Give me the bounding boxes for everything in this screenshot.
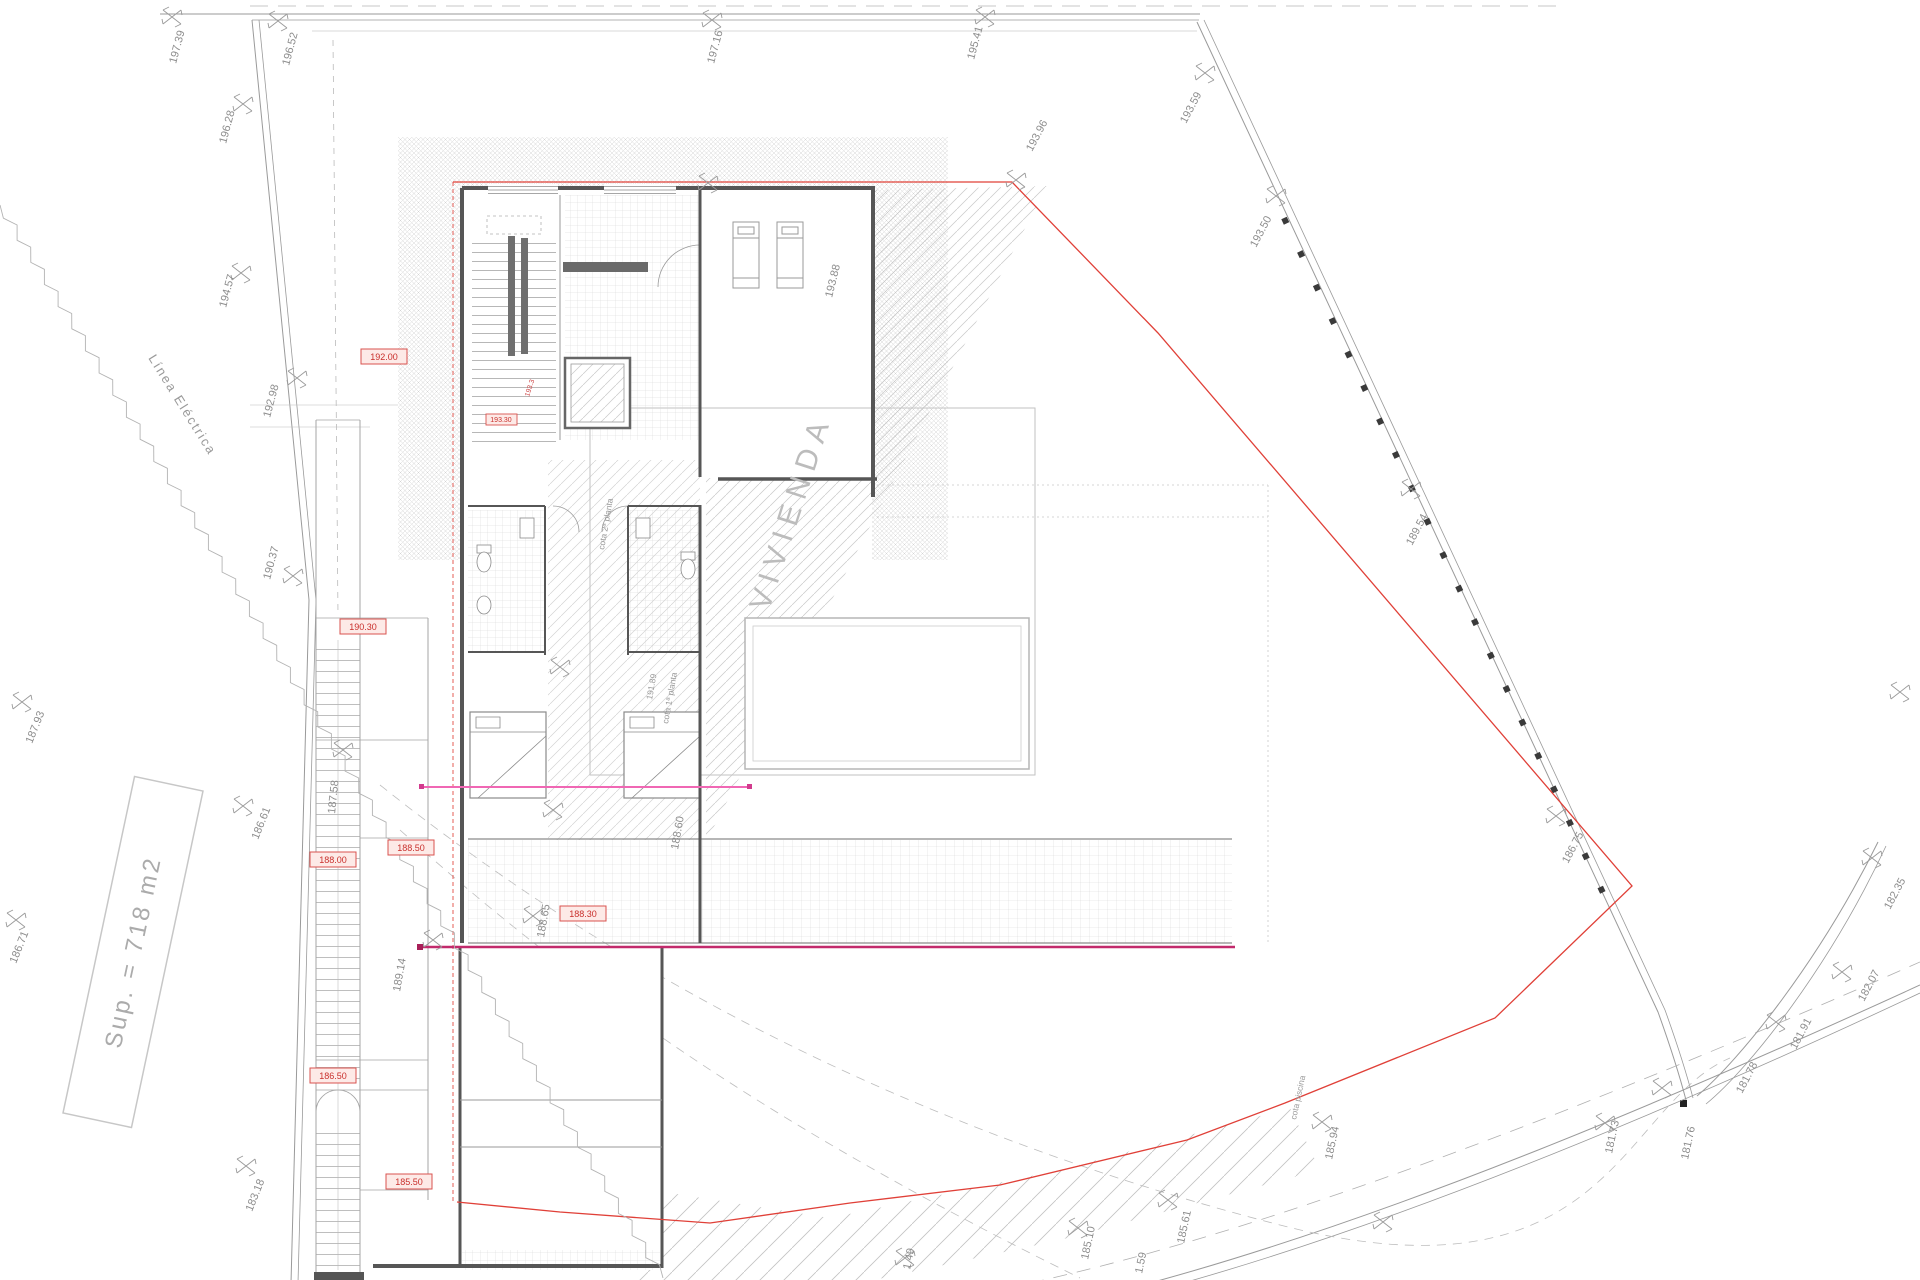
terrace-deck: [468, 839, 1232, 943]
cota-box: 188.50: [388, 840, 434, 855]
elevation-label: 186.71: [8, 929, 32, 965]
sink-icon: [520, 518, 534, 538]
cota-value: 188.30: [569, 909, 597, 919]
elevation-label: 181.76: [1679, 1125, 1698, 1160]
elevation-label: 185.61: [1175, 1209, 1194, 1244]
bathroom-right: [628, 510, 700, 652]
elevation-label: 186.61: [250, 805, 274, 841]
site-plan-drawing: 197.39 196.52 197.16 195.41 193.59 193.5…: [0, 0, 1920, 1280]
road-centerline: [1030, 962, 1920, 1280]
elevation-label: 181.73: [1603, 1119, 1622, 1154]
elevation-label: 183.18: [244, 1177, 268, 1213]
elevation-label: 181.78: [1734, 1060, 1760, 1095]
note-label: cota piscina: [1288, 1074, 1307, 1120]
elevation-label: 193.50: [1248, 214, 1274, 249]
elevation-label: 197.39: [167, 29, 187, 65]
elevation-label: 196.52: [280, 31, 300, 67]
elevation-label: 186.75: [1560, 830, 1586, 865]
bed-left: [470, 712, 546, 798]
elevation-label: 189.14: [391, 957, 409, 992]
elevation-label: 193.59: [1178, 90, 1204, 125]
cota-box: 192.00: [361, 349, 407, 364]
sink-icon: [636, 518, 650, 538]
toilet-icon: [477, 552, 491, 572]
driveway-hatch: [630, 1108, 1320, 1280]
elevation-label: 181.91: [1788, 1016, 1814, 1051]
elevation-label: 185.94: [1323, 1125, 1342, 1160]
cota-value: 188.00: [319, 855, 347, 865]
toilet-icon: [681, 559, 695, 579]
elevation-label: 189.54: [1404, 512, 1430, 547]
cota-value: 186.50: [319, 1071, 347, 1081]
cota-value: 190.30: [349, 622, 377, 632]
bathroom-left: [468, 510, 545, 652]
cota-box: 193.30: [486, 414, 517, 425]
shower-shaft: [565, 358, 630, 428]
parcel-area-box: Sup. = 718 m2: [63, 776, 203, 1127]
elevation-label: 182.07: [1856, 968, 1882, 1003]
cota-value: 192.00: [370, 352, 398, 362]
parcel-area-label: Sup. = 718 m2: [100, 854, 167, 1051]
power-line-label: Línea Eléctrica: [145, 352, 219, 458]
elevation-label: 1.59: [1133, 1251, 1149, 1274]
cota-value: 193.30: [490, 417, 512, 424]
lower-wing: [373, 947, 662, 1270]
cota-box: 188.00: [310, 852, 356, 867]
cota-box: 186.50: [310, 1068, 356, 1083]
elevation-label: 193.96: [1024, 118, 1050, 153]
fence-line: [1197, 20, 1693, 1107]
elevation-label: 194.57: [217, 273, 237, 309]
elevation-label: 182.35: [1882, 876, 1908, 911]
elevation-label: 192.98: [261, 383, 281, 419]
cota-value: 185.50: [395, 1177, 423, 1187]
elevation-label: 190.37: [261, 545, 281, 581]
bed-right: [624, 712, 700, 798]
swimming-pool: [745, 618, 1029, 769]
cota-box: 188.30: [560, 906, 606, 921]
elevation-label: 196.28: [217, 109, 237, 145]
cota-value: 188.50: [397, 843, 425, 853]
cota-box: 190.30: [340, 619, 386, 634]
cota-box: 185.50: [386, 1174, 432, 1189]
elevation-label: 197.16: [705, 29, 725, 65]
site-plan-canvas: 197.39 196.52 197.16 195.41 193.59 193.5…: [0, 0, 1920, 1280]
elevation-label: 187.93: [24, 709, 48, 745]
kitchen-counter-wall: [563, 262, 648, 272]
bidet-icon: [477, 596, 491, 614]
elevation-label: 195.41: [965, 25, 985, 61]
